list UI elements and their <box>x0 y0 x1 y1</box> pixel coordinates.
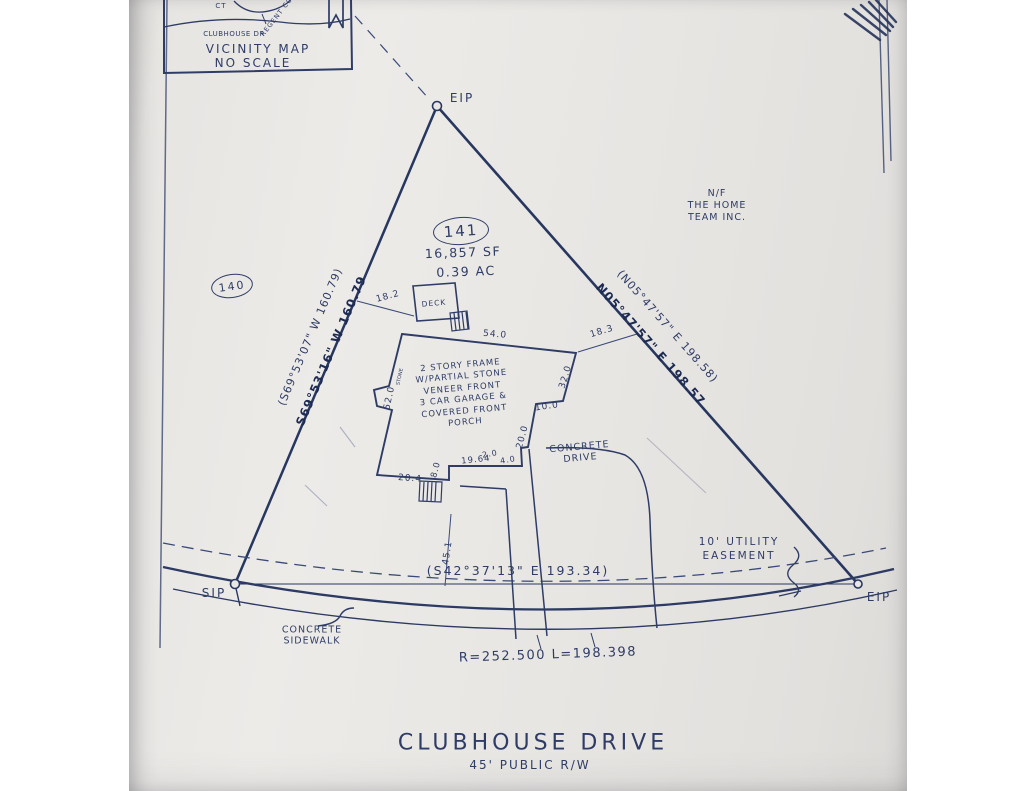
eip-top-marker <box>433 102 442 111</box>
eip-right-marker <box>854 580 862 588</box>
sip-marker <box>231 580 240 589</box>
lot-number: 141 <box>443 221 479 241</box>
frontage-curve <box>163 567 894 610</box>
corner-monuments <box>231 102 863 589</box>
deck-steps-hatch <box>450 311 469 331</box>
lot-boundary-lines <box>235 106 858 606</box>
adjacent-lot-number: 140 <box>218 278 247 295</box>
dashed-leader-line <box>355 16 429 99</box>
deck-outline <box>413 283 459 321</box>
vicinity-map-box <box>164 0 352 73</box>
west-boundary-line <box>235 106 437 584</box>
front-walk-edge <box>460 486 516 639</box>
porch-steps-hatch <box>419 481 442 502</box>
scanned-survey-plat: VICINITY MAP NO SCALE CLUBHOUSE DR CT RE… <box>0 0 1024 791</box>
utility-easement-line <box>163 543 886 581</box>
street-curves <box>163 567 897 649</box>
plat-linework <box>0 0 1024 791</box>
vicinity-court-loop <box>234 0 290 12</box>
label-leaders <box>318 547 801 626</box>
north-arrow-icon <box>329 0 343 28</box>
sheet-border-lines <box>160 0 891 648</box>
vicinity-road-line <box>164 19 350 27</box>
drive-right-edge <box>546 448 657 628</box>
drive-left-edge <box>529 449 547 636</box>
house-footprint <box>374 283 576 502</box>
